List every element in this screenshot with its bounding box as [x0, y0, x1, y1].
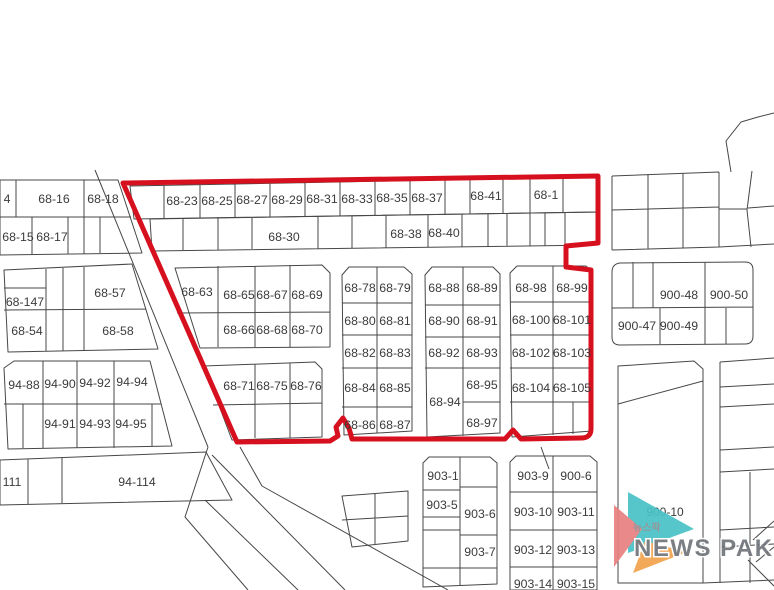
parcel-label: 900-47	[618, 319, 656, 333]
parcel-label: 903-13	[557, 543, 595, 557]
parcel-label: 903-15	[557, 577, 595, 590]
parcel-label: 68-98	[515, 281, 547, 295]
parcel-label: 68-68	[256, 323, 288, 337]
parcel-label: 68-81	[379, 314, 411, 328]
parcel-label: 68-103	[553, 346, 591, 360]
parcel-lines-small-grid	[342, 447, 549, 547]
parcel-label: 900-50	[710, 288, 748, 302]
parcel-label: 68-31	[306, 192, 338, 206]
parcel-label: 68-57	[94, 286, 126, 300]
parcel-label: 68-54	[11, 324, 43, 338]
parcel-label: 68-18	[87, 192, 119, 206]
parcel-label: 94-95	[115, 417, 147, 431]
parcel-lines-block-71	[204, 362, 322, 440]
parcel-label: 68-41	[470, 189, 502, 203]
parcel-label: 94-90	[44, 377, 76, 391]
parcel-label: 903-1	[427, 469, 459, 483]
parcel-label: 68-23	[166, 194, 198, 208]
parcel-label: 68-105	[553, 381, 591, 395]
parcel-label: 94-114	[118, 475, 156, 489]
parcel-lines-ne-grid	[612, 113, 774, 250]
parcel-label: 68-38	[390, 227, 422, 241]
parcel-label: 903-7	[464, 545, 496, 559]
parcel-label: 94-88	[8, 378, 40, 392]
parcel-label: 68-70	[291, 323, 323, 337]
parcel-label: 903-11	[557, 505, 595, 519]
parcel-label: 111	[3, 475, 22, 489]
parcel-label: 68-16	[38, 192, 70, 206]
parcel-label: 903-9	[517, 469, 549, 483]
parcel-label: 900-49	[660, 319, 698, 333]
parcel-label: 68-58	[102, 324, 134, 338]
parcel-label: 68-92	[428, 346, 460, 360]
parcel-lines-top-row2	[150, 212, 598, 251]
parcel-label: 68-27	[236, 193, 268, 207]
parcel-label: 68-35	[376, 191, 408, 205]
parcel-label: 903-6	[464, 507, 496, 521]
parcel-label: 68-76	[290, 379, 322, 393]
parcel-label: 68-65	[223, 288, 255, 302]
parcel-label: 68-101	[553, 313, 591, 327]
parcel-label: 68-97	[466, 416, 498, 430]
parcel-label: 68-91	[466, 314, 498, 328]
parcel-label: 68-94	[429, 395, 461, 409]
parcel-label: 94-92	[79, 376, 111, 390]
parcel-label: 68-95	[466, 378, 498, 392]
parcel-label: 68-15	[2, 230, 34, 244]
parcel-label: 900-6	[560, 469, 592, 483]
parcel-label: 68-147	[6, 295, 44, 309]
parcel-label: 68-66	[223, 323, 255, 337]
parcel-label: 903-5	[426, 498, 458, 512]
parcel-label: 68-71	[223, 379, 255, 393]
parcel-label: 68-93	[466, 346, 498, 360]
parcel-label: 4	[4, 192, 11, 206]
parcel-label: 903-10	[514, 505, 552, 519]
parcel-label: 68-88	[428, 281, 460, 295]
parcel-label: 68-29	[271, 193, 303, 207]
parcel-label: 68-63	[181, 285, 213, 299]
parcel-label: 68-80	[344, 314, 376, 328]
parcel-label: 68-99	[556, 281, 588, 295]
parcel-label: 903-12	[514, 543, 552, 557]
parcel-label: 94-93	[79, 417, 111, 431]
parcel-label: 68-67	[256, 288, 288, 302]
parcel-label: 68-100	[512, 313, 550, 327]
parcel-label: 903-14	[514, 577, 552, 590]
parcel-label: 68-79	[379, 281, 411, 295]
parcel-label: 68-69	[291, 288, 323, 302]
parcel-label: 68-17	[36, 230, 68, 244]
parcel-label: 68-85	[379, 381, 411, 395]
parcel-label: 68-82	[344, 346, 376, 360]
parcel-label: 68-25	[201, 194, 233, 208]
parcel-label: 68-83	[379, 346, 411, 360]
parcel-label: 68-104	[512, 381, 550, 395]
parcel-label: 68-33	[341, 192, 373, 206]
logo-korean-text: 뉴스팍	[633, 521, 661, 534]
parcel-label: 68-75	[256, 379, 288, 393]
parcel-label: 68-84	[344, 381, 376, 395]
parcel-label: 68-89	[466, 281, 498, 295]
parcel-label: 68-90	[428, 314, 460, 328]
parcel-label: 68-87	[379, 418, 411, 432]
parcel-label: 68-102	[512, 346, 550, 360]
parcel-label: 94-91	[44, 417, 76, 431]
parcel-label: 68-37	[411, 191, 443, 205]
parcel-label: 68-1	[534, 188, 559, 202]
parcel-label: 68-78	[344, 281, 376, 295]
parcel-label: 94-94	[116, 375, 148, 389]
parcel-label: 68-30	[268, 230, 300, 244]
cadastral-map: 4 68-16 68-18 68-15 68-17 68-23 68-25 68…	[0, 0, 774, 590]
parcel-label: 68-40	[428, 226, 460, 240]
logo-name-text: NEWS PAK	[634, 535, 774, 562]
parcel-label: 68-86	[344, 418, 376, 432]
cadastral-map-canvas: 4 68-16 68-18 68-15 68-17 68-23 68-25 68…	[0, 0, 774, 590]
parcel-label: 900-48	[660, 288, 698, 302]
